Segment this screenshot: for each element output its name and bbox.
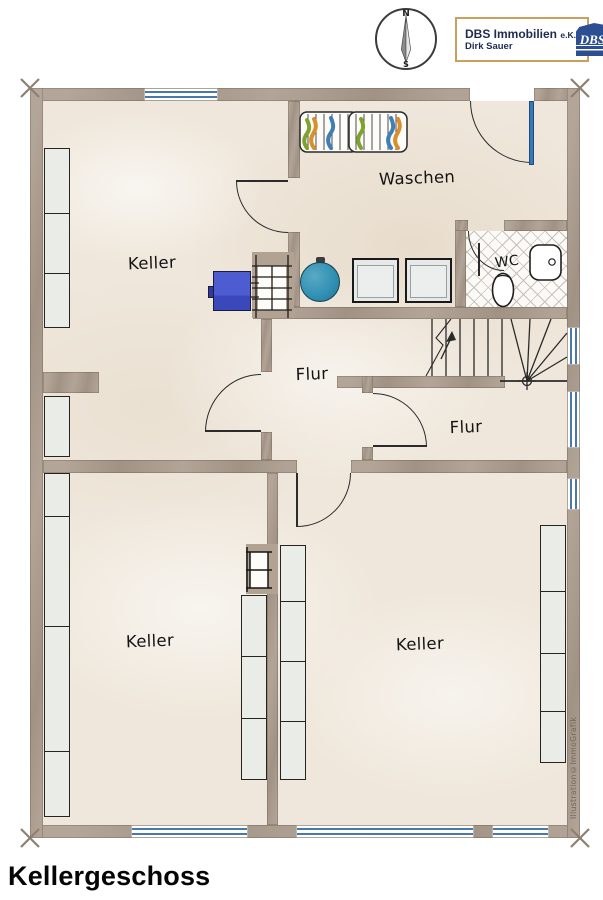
shelf-center-right: [280, 545, 306, 780]
room-label-flur-right: Flur: [449, 417, 482, 437]
washing-machine-2: [405, 258, 452, 303]
shelf-bottom-left-keller: [44, 473, 70, 817]
wall-exterior-top-left: [30, 88, 470, 101]
wall-flur-keller-upper: [261, 319, 272, 372]
door-leaf-bottom-keller: [296, 473, 298, 527]
door-leaf-keller-waschen: [236, 180, 288, 182]
agency-name-block: DBS Immobilien e.K. Dirk Sauer: [457, 27, 576, 52]
wall-keller-waschen-upper: [288, 101, 300, 178]
owner-name: Dirk Sauer: [465, 41, 576, 52]
door-leaf-flur-flur: [373, 445, 427, 447]
shelf-top-keller: [44, 148, 70, 328]
wall-flur-divider-lower: [362, 447, 373, 460]
compass-south-label: S: [403, 60, 409, 69]
compass-north-label: N: [402, 9, 410, 19]
wall-waschen-flur: [253, 307, 567, 319]
shelf-center-left: [241, 595, 267, 780]
room-label-flur-left: Flur: [295, 364, 328, 384]
washing-machine-2-lid: [410, 265, 447, 298]
door-leaf-wc: [478, 243, 480, 276]
window-bottom-3: [493, 826, 548, 837]
wall-keller-waschen-lower: [288, 232, 300, 307]
watermark: Illustration©ImmoGrafik: [569, 694, 578, 819]
shelf-left-mid: [44, 396, 70, 457]
wall-wc-top-left: [455, 220, 468, 231]
room-label-wc: WC: [494, 253, 520, 272]
wall-exterior-left: [30, 88, 43, 838]
agency-logo-box: DBS Immobilien e.K. Dirk Sauer DBS: [455, 17, 589, 62]
chest-freezer-icon: [213, 271, 251, 311]
window-bottom-2: [297, 826, 473, 837]
window-bottom-1: [132, 826, 247, 837]
floor-plan-page: N S DBS Immobilien e.K. Dirk Sauer DBS: [0, 0, 603, 900]
wall-wc-top-right: [504, 220, 567, 231]
room-label-waschen: Waschen: [379, 167, 456, 189]
wall-flur-keller-lower: [261, 432, 272, 460]
washing-machine-1-lid: [357, 265, 394, 298]
wall-main-horizontal-right: [351, 460, 567, 473]
entrance-door-leaf: [529, 101, 534, 165]
wall-bottom-kellers-divider: [267, 473, 278, 825]
wall-left-stub: [43, 372, 99, 393]
wall-flur-divider-upper: [362, 376, 373, 393]
floor-title: Kellergeschoss: [8, 861, 210, 892]
window-right-2: [568, 392, 579, 447]
wall-wc-left: [455, 220, 466, 307]
wall-main-horizontal-left: [43, 460, 297, 473]
window-right-3: [568, 479, 579, 509]
door-leaf-flur-keller: [205, 430, 261, 432]
room-label-keller-top: Keller: [128, 253, 177, 274]
boiler-icon: [300, 262, 340, 302]
room-label-keller-bottom-right: Keller: [396, 634, 445, 655]
window-top: [145, 89, 217, 100]
window-right-1: [568, 328, 579, 364]
company-suffix: e.K.: [560, 30, 576, 40]
agency-monogram-icon: DBS: [576, 23, 603, 56]
shelf-bottom-right-keller: [540, 525, 566, 763]
room-label-keller-bottom-left: Keller: [126, 631, 175, 652]
company-name: DBS Immobilien: [465, 27, 557, 41]
washing-machine-1: [352, 258, 399, 303]
compass-icon: N S: [375, 8, 437, 70]
